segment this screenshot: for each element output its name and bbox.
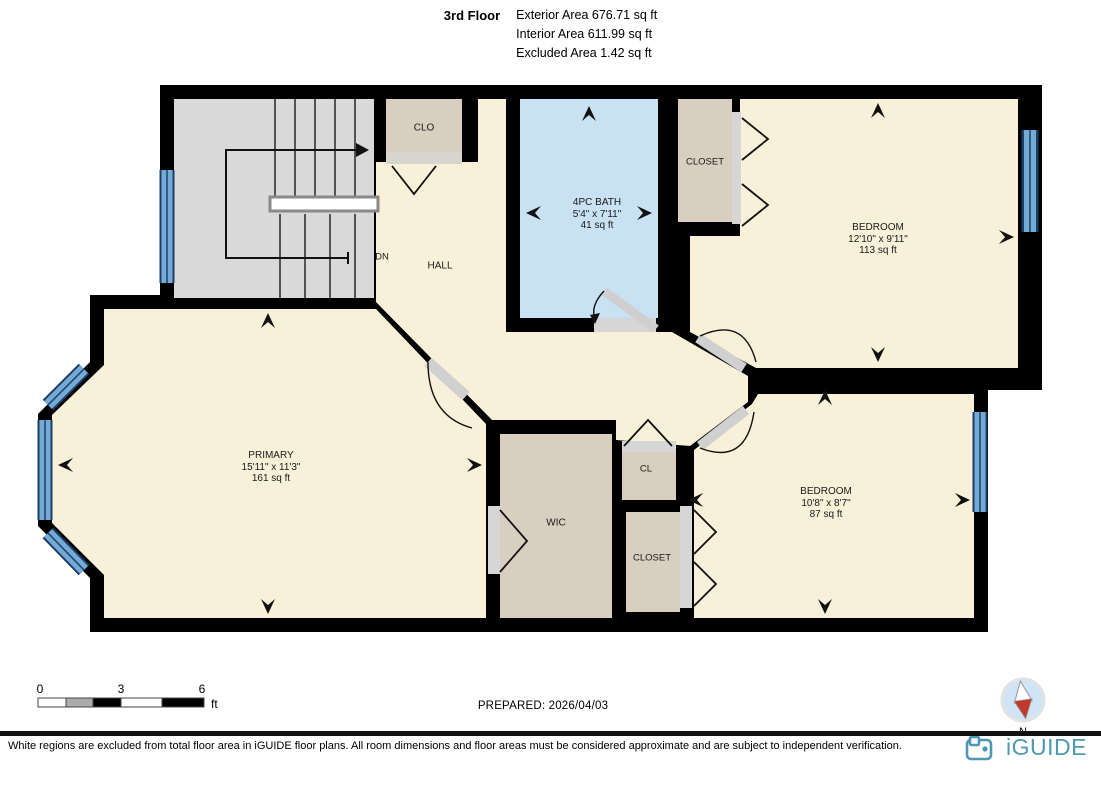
scale-tick-3: 3 <box>118 682 125 696</box>
label-primary: PRIMARY 15'11" x 11'3" 161 sq ft <box>242 450 301 485</box>
scale-bar <box>38 698 204 707</box>
stair-railing <box>270 197 378 211</box>
label-clo: CLO <box>414 122 435 134</box>
floorplan-page: 3rd Floor Exterior Area 676.71 sq ft Int… <box>0 0 1101 801</box>
scale-tick-0: 0 <box>37 682 44 696</box>
label-bedroom2: BEDROOM 10'8" x 8'7" 87 sq ft <box>800 486 852 521</box>
iguide-wordmark: iGUIDE <box>1006 734 1087 761</box>
scale-tick-6: 6 <box>199 682 206 696</box>
iguide-logo: iGUIDE <box>974 734 1087 761</box>
label-closet-bottom: CLOSET <box>633 552 671 564</box>
label-closet-top: CLOSET <box>686 156 724 168</box>
compass-icon <box>1002 679 1044 721</box>
floorplan-drawing <box>0 0 1101 801</box>
label-cl: CL <box>640 463 652 475</box>
label-wic: WIC <box>546 517 565 529</box>
room-fills <box>52 99 1018 618</box>
label-bath: 4PC BATH 5'4" x 7'11" 41 sq ft <box>573 197 622 232</box>
scale-unit: ft <box>211 697 218 711</box>
label-dn: DN <box>375 251 389 263</box>
disclaimer-text: White regions are excluded from total fl… <box>8 740 902 752</box>
footer-divider <box>0 731 1101 736</box>
label-bedroom1: BEDROOM 12'10" x 9'11" 113 sq ft <box>848 222 908 257</box>
room-cl <box>622 452 676 500</box>
label-hall: HALL <box>427 260 452 272</box>
prepared-date: PREPARED: 2026/04/03 <box>478 700 608 712</box>
